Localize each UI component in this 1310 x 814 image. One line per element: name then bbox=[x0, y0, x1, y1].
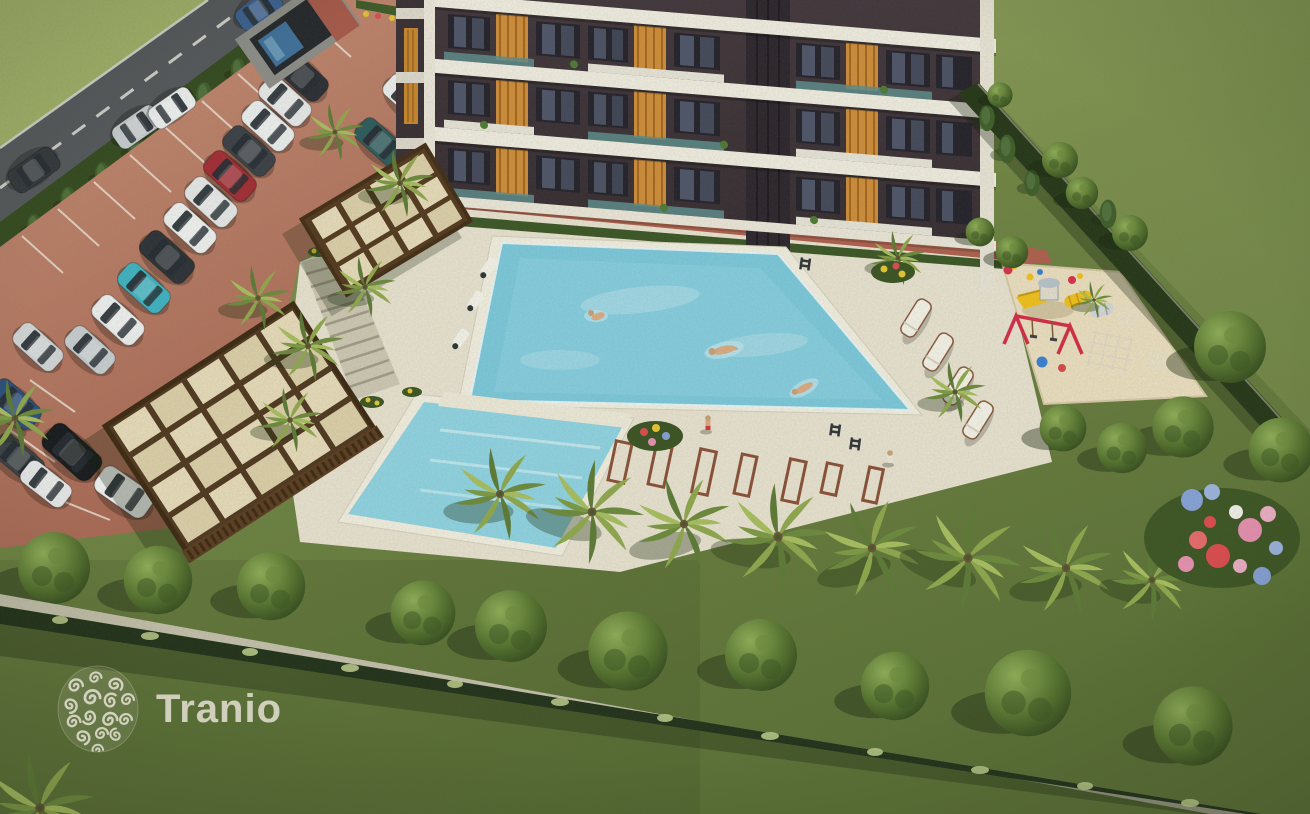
aerial-render: Tranio bbox=[0, 0, 1310, 814]
vignette bbox=[0, 0, 1310, 814]
